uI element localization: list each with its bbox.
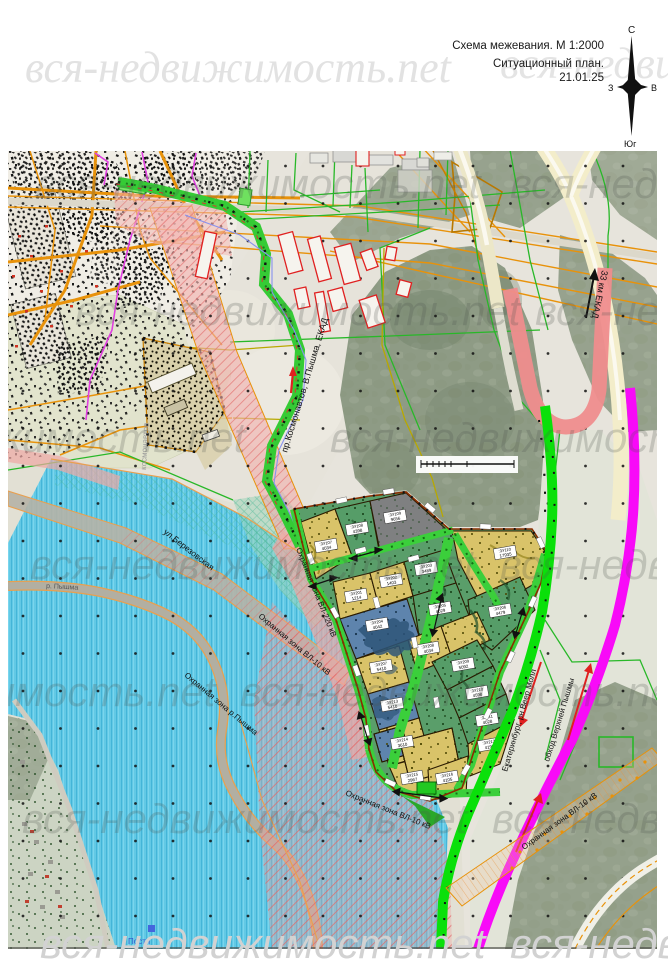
svg-text:вся-недвижимость.net: вся-недвижимость.net <box>22 795 470 842</box>
svg-text:вся-недвижимость.net: вся-недвижимость.net <box>30 541 478 588</box>
svg-text:вся-недвижимость.net: вся-недвижимость.net <box>240 668 668 715</box>
svg-text:вся-недвижимость.net: вся-недвижимость.net <box>535 287 668 334</box>
svg-text:вся-недвижимость.net: вся-недвижимость.net <box>330 414 668 461</box>
svg-text:вся-недвижимость.net: вся-недвижимость.net <box>0 668 218 715</box>
svg-text:вся-недвижимость.net: вся-недвижимость.net <box>500 541 668 588</box>
svg-text:21.01.25: 21.01.25 <box>559 72 604 84</box>
svg-text:вся-недвижимость.net: вся-недвижимость.net <box>0 414 248 461</box>
svg-text:вся-недвижимость.net: вся-недвижимость.net <box>492 795 668 842</box>
svg-text:С: С <box>628 25 635 36</box>
svg-text:вся-недвижимость.net: вся-недвижимость.net <box>25 43 453 92</box>
svg-text:вся-недвижимость.net: вся-недвижимость.net <box>510 160 668 207</box>
svg-text:В: В <box>651 83 657 93</box>
svg-text:вся-недвижимость.net: вся-недвижимость.net <box>35 160 483 207</box>
svg-text:З: З <box>608 83 613 93</box>
svg-text:Юг: Юг <box>624 139 637 149</box>
svg-text:Ситуационный план.: Ситуационный план. <box>493 58 604 70</box>
svg-text:вся-недвижимость.net: вся-недвижимость.net <box>75 287 523 334</box>
svg-text:вся-недвижимость.net: вся-недвижимость.net <box>510 920 668 960</box>
svg-text:вся-недвижимость.net: вся-недвижимость.net <box>40 920 488 960</box>
svg-text:Схема межевания. М 1:2000: Схема межевания. М 1:2000 <box>452 40 604 52</box>
